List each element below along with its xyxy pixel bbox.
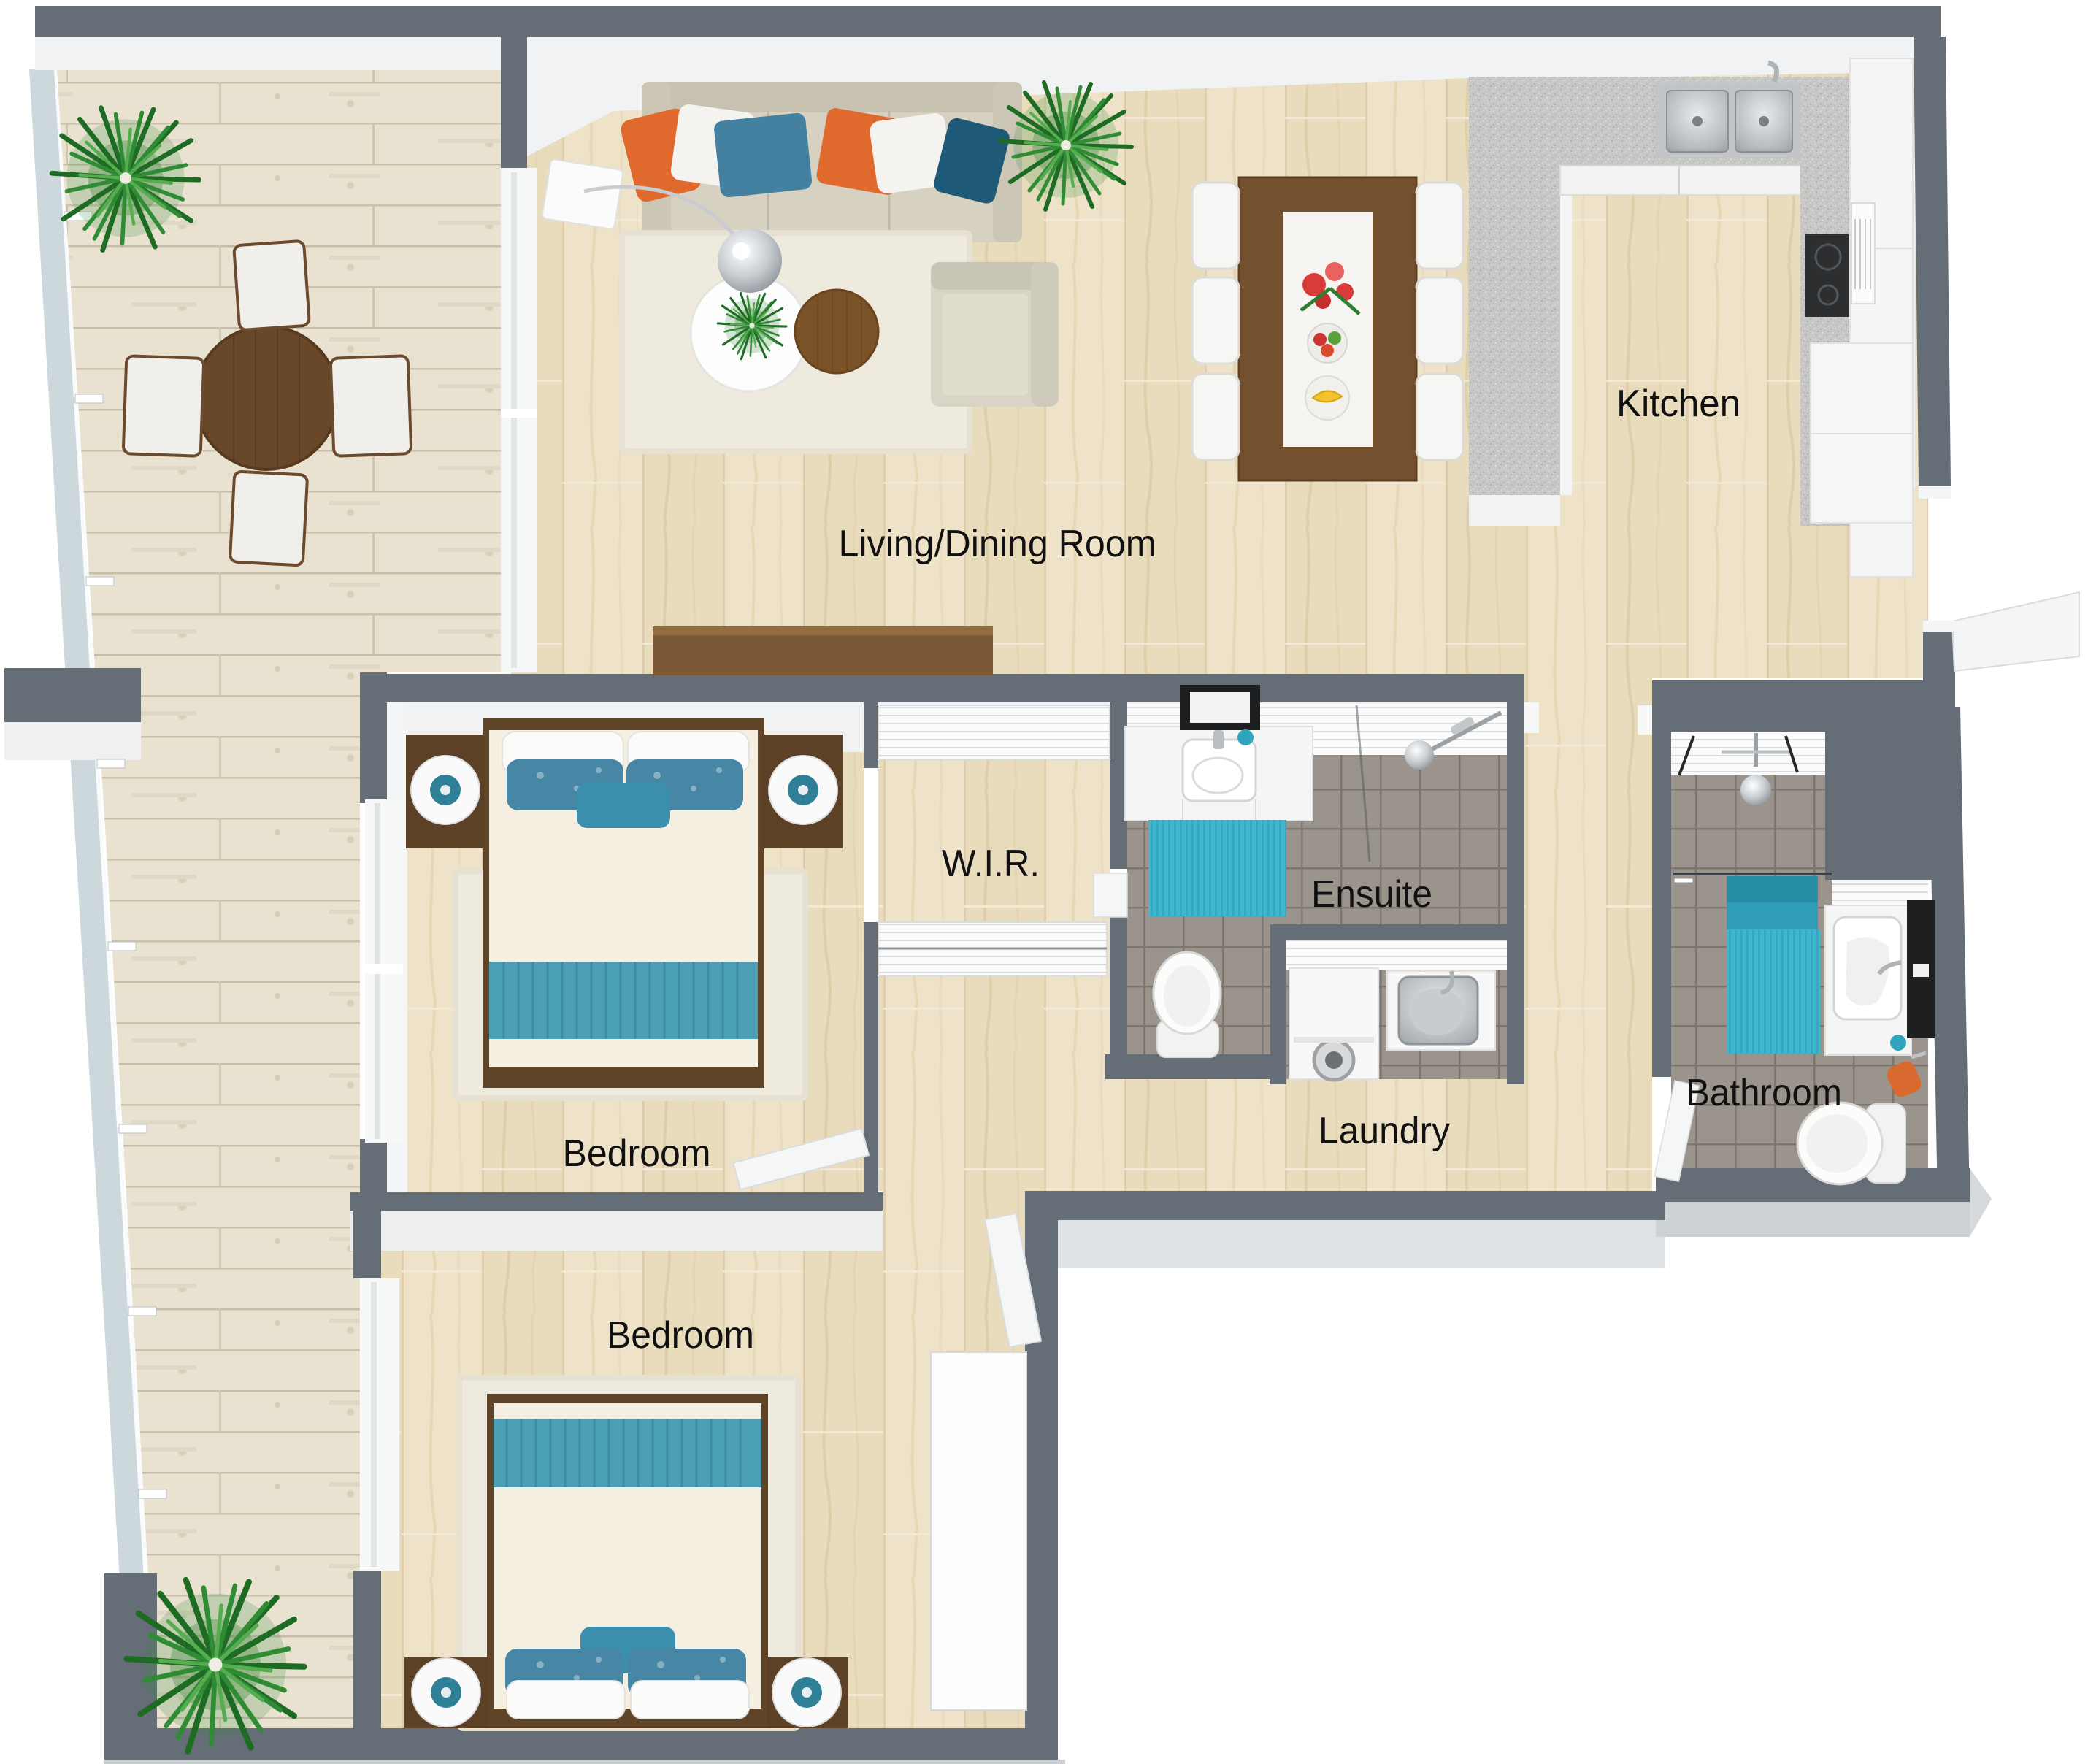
svg-text:Bathroom: Bathroom: [1686, 1072, 1842, 1114]
svg-text:Laundry: Laundry: [1319, 1110, 1450, 1152]
svg-text:Bedroom: Bedroom: [607, 1314, 754, 1357]
svg-text:W.I.R.: W.I.R.: [942, 843, 1040, 885]
svg-text:Ensuite: Ensuite: [1311, 873, 1432, 916]
svg-text:Living/Dining Room: Living/Dining Room: [839, 523, 1156, 565]
svg-text:Bedroom: Bedroom: [563, 1132, 711, 1175]
svg-text:Kitchen: Kitchen: [1616, 383, 1740, 425]
